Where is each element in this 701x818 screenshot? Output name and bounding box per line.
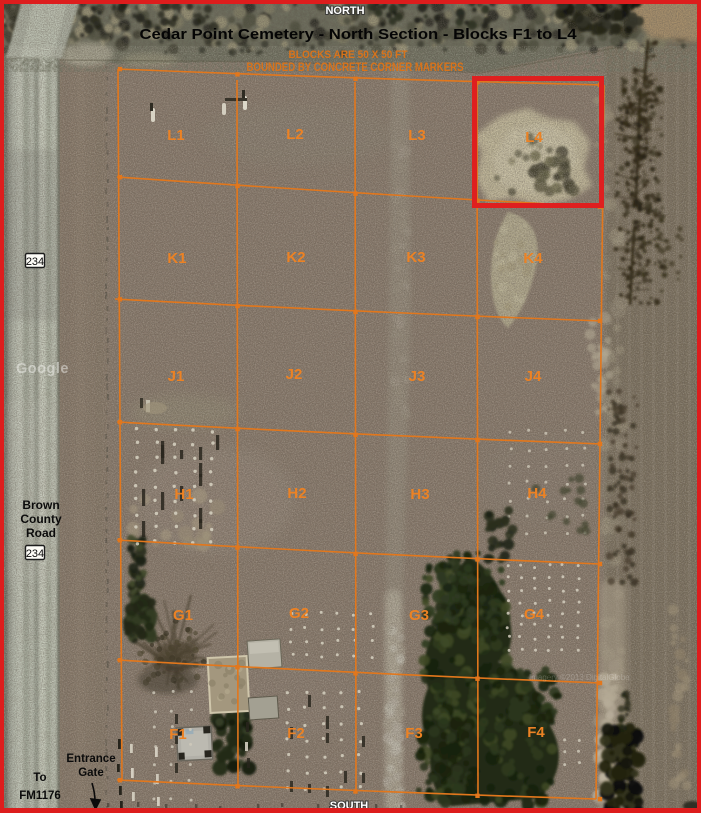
svg-text:Cedar Point Cemetery - North S: Cedar Point Cemetery - North Section - B… [140,26,578,43]
svg-text:G4: G4 [524,606,545,623]
svg-text:H3: H3 [410,486,429,503]
svg-text:G3: G3 [409,607,429,624]
svg-text:BOUNDED BY CONCRETE CORNER MAR: BOUNDED BY CONCRETE CORNER MARKERS [247,62,464,74]
svg-text:234: 234 [26,256,44,268]
svg-text:F1: F1 [169,726,187,743]
svg-text:Road: Road [26,526,56,540]
svg-text:H1: H1 [174,486,193,503]
svg-text:H4: H4 [527,485,547,502]
svg-text:F4: F4 [527,724,545,741]
svg-text:K2: K2 [286,249,305,266]
svg-text:H2: H2 [287,485,306,502]
svg-text:G1: G1 [173,607,193,624]
svg-text:G2: G2 [289,605,309,622]
svg-text:L3: L3 [408,127,426,144]
svg-text:BLOCKS ARE 50 X 50 FT: BLOCKS ARE 50 X 50 FT [289,49,408,61]
svg-text:County: County [20,512,62,526]
svg-text:J4: J4 [525,368,542,385]
svg-text:To: To [33,772,46,784]
svg-text:Brown: Brown [22,498,59,512]
svg-text:L4: L4 [525,129,543,146]
svg-text:NORTH: NORTH [325,5,364,17]
svg-text:FM1176: FM1176 [19,790,61,802]
svg-text:L2: L2 [286,126,304,143]
svg-text:F3: F3 [405,725,423,742]
svg-text:J3: J3 [409,368,426,385]
svg-text:F2: F2 [287,725,305,742]
svg-text:Entrance: Entrance [66,753,115,765]
svg-text:234: 234 [26,548,44,560]
svg-text:J2: J2 [286,366,303,383]
svg-text:L1: L1 [167,127,185,144]
svg-text:K1: K1 [167,250,186,267]
svg-text:Gate: Gate [78,767,104,779]
svg-text:K4: K4 [523,250,543,267]
svg-text:Google: Google [16,361,69,377]
svg-text:Imagery ©2013 DigitalGlobe: Imagery ©2013 DigitalGlobe [529,673,630,682]
svg-text:J1: J1 [168,368,185,385]
svg-text:K3: K3 [406,249,425,266]
